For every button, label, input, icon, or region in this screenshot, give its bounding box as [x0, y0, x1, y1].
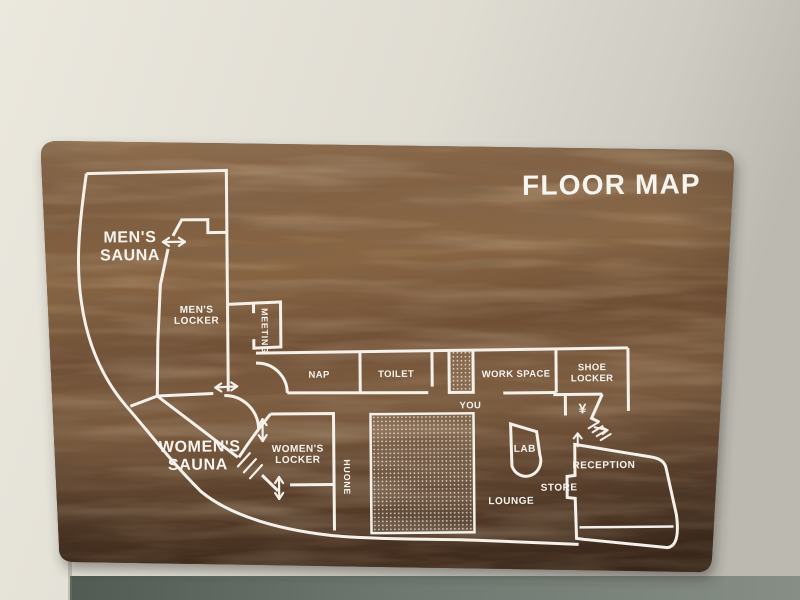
- floor-map-photo: FLOOR MAP MEN'S SAUNA MEN'S LOCKER MEETI…: [0, 0, 800, 600]
- room-label-womens-sauna-line2: SAUNA: [168, 456, 228, 474]
- room-label-store: STORE: [541, 482, 578, 493]
- you-are-here-label: YOU: [459, 400, 481, 411]
- room-label-lab: LAB: [514, 444, 536, 455]
- room-label-womens-locker-line2: LOCKER: [275, 455, 321, 466]
- room-label-meeting: MEETING: [260, 308, 270, 354]
- room-label-mens-locker-line1: MEN'S: [180, 305, 214, 316]
- yen-symbol: ¥: [578, 400, 586, 416]
- room-label-shoe-locker-line1: SHOE: [578, 362, 607, 373]
- room-label-mens-locker-line2: LOCKER: [174, 315, 220, 326]
- room-label-huone: HUONE: [342, 459, 352, 495]
- room-label-mens-sauna-line1: MEN'S: [103, 229, 156, 246]
- wall-corner-edge: [68, 562, 72, 600]
- room-label-shoe-locker-line2: LOCKER: [571, 373, 614, 384]
- photo-of-floor-map-sign: FLOOR MAP MEN'S SAUNA MEN'S LOCKER MEETI…: [0, 0, 800, 600]
- room-label-nap: NAP: [308, 370, 330, 381]
- room-label-work-space: WORK SPACE: [482, 369, 551, 381]
- room-label-toilet: TOILET: [378, 369, 414, 380]
- room-label-womens-locker-line1: WOMEN'S: [272, 444, 324, 455]
- lower-wall: [70, 576, 800, 600]
- page-title: FLOOR MAP: [522, 168, 701, 201]
- room-label-mens-sauna-line2: SAUNA: [100, 247, 160, 265]
- room-label-lounge: LOUNGE: [488, 496, 534, 507]
- room-label-reception: RECEPTION: [572, 460, 635, 472]
- room-label-womens-sauna-line1: WOMEN'S: [159, 438, 241, 456]
